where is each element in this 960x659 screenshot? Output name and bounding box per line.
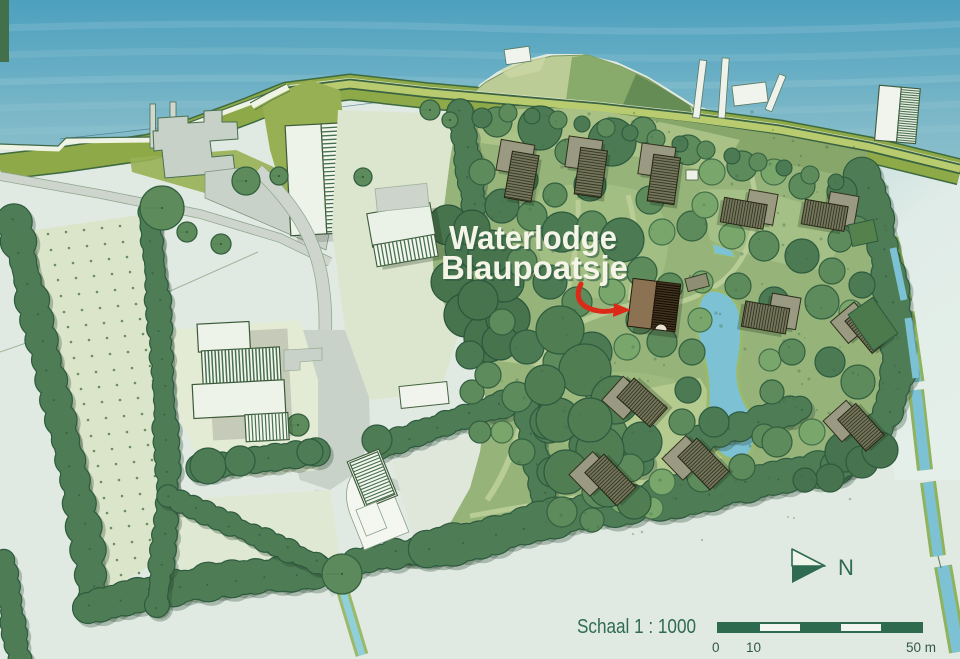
svg-text:50 m: 50 m xyxy=(906,640,936,655)
svg-text:10: 10 xyxy=(746,640,761,655)
svg-text:Schaal 1 : 1000: Schaal 1 : 1000 xyxy=(577,616,696,638)
svg-text:N: N xyxy=(838,555,854,580)
svg-text:Blaupoatsje: Blaupoatsje xyxy=(441,249,628,286)
svg-text:0: 0 xyxy=(712,640,720,655)
